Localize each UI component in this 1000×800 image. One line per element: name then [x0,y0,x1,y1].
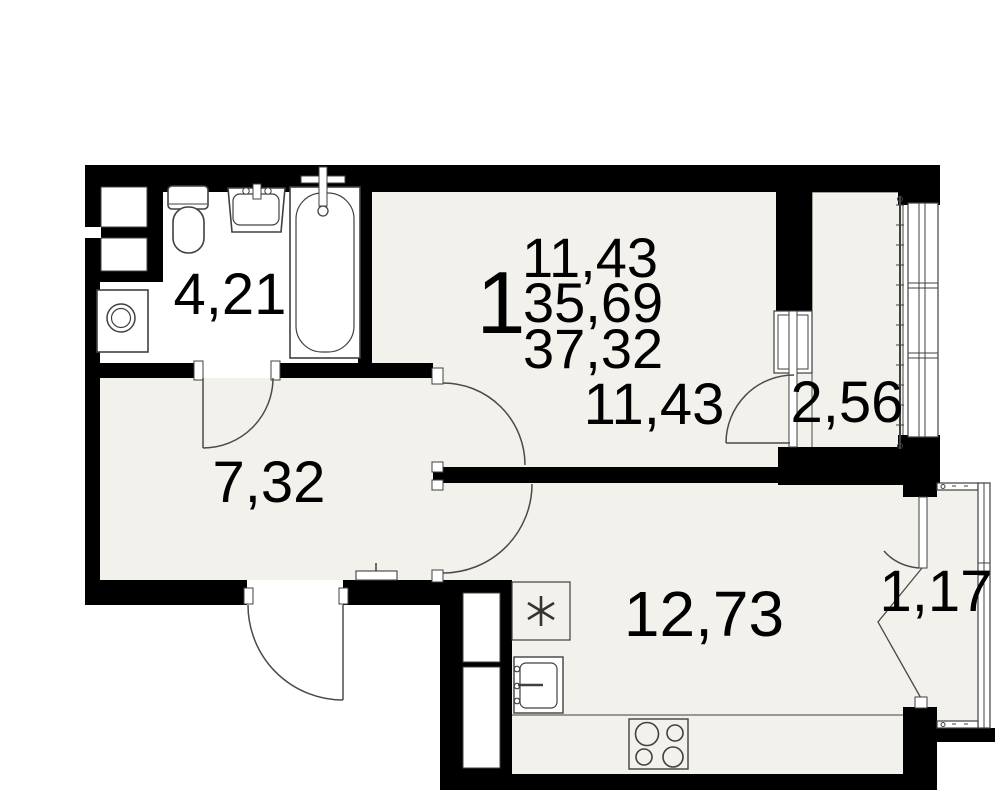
kitchen-sink-icon [514,657,563,713]
toilet-icon [168,186,208,253]
room-label-bathroom: 4,21 [174,262,287,327]
summary-total-area: 37,32 [523,317,663,380]
entrance-door-icon [248,605,343,700]
niche-left-1 [101,187,147,227]
wall-kitchen-east-top [903,485,937,497]
bathtub-icon [290,167,360,358]
floor-plan-drawing: 1 11,43 35,69 37,32 4,21 7,32 11,43 12,7… [0,0,1000,800]
ventilation-shaft-icon [512,582,570,640]
room-label-balcony: 1,17 [880,559,993,624]
room-label-loggia: 2,56 [791,370,904,435]
bathroom-sink-icon [228,184,285,232]
doorframe-bath-right [271,361,280,380]
washing-machine-icon [97,290,148,352]
vent-slot [84,227,101,238]
room-label-living: 11,43 [584,372,725,437]
niche-left-2 [101,238,147,271]
doorframe-bath-left [194,361,203,380]
wall-midright-block [898,435,940,485]
doorframe-entrance-left [244,588,253,604]
room-label-hallway: 7,32 [213,450,326,515]
bathroom-door-opening [202,363,272,378]
floor-plan-page: 1 11,43 35,69 37,32 4,21 7,32 11,43 12,7… [0,0,1000,800]
wall-top [85,165,940,192]
wall-loggia-pier [776,192,812,313]
niche-kitchen-2 [463,667,500,768]
summary-rooms-count: 1 [477,253,526,352]
doorframe-living-top [432,368,443,384]
entrance-door-opening [247,580,343,605]
wall-balcony-south [937,728,995,742]
room-label-kitchen: 12,73 [624,578,784,650]
wall-living-kitchen [433,467,778,483]
wall-kitchen-south [440,774,937,790]
doorframe-entrance-right [339,588,348,604]
niche-kitchen-1 [463,593,500,662]
doorframe-stub-bottom [432,480,443,490]
facade-window-icon [908,203,938,437]
doorframe-stub-top [432,462,443,472]
doorframe-kitchen-bottom [432,570,443,582]
